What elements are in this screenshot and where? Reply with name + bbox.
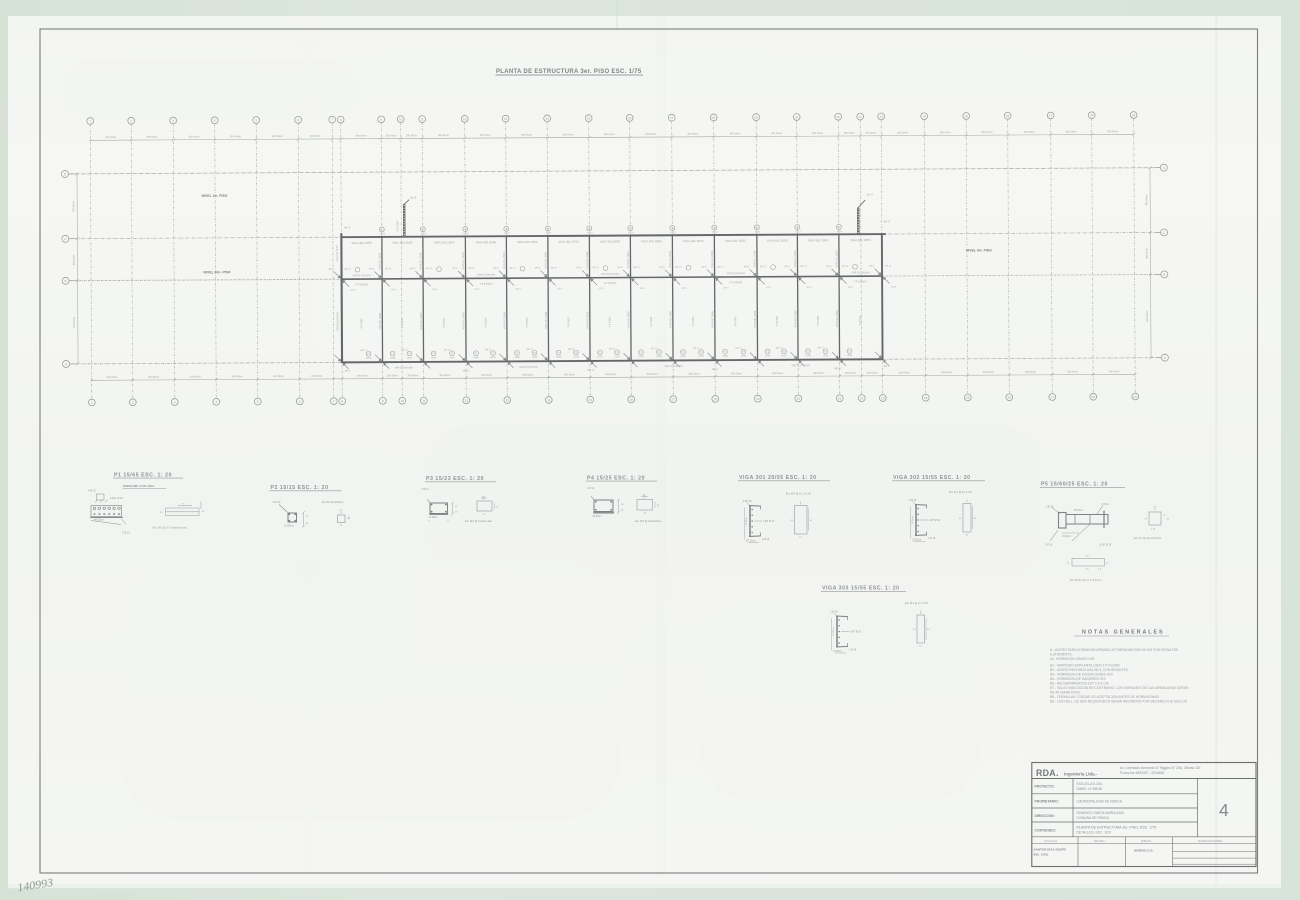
svg-text:MF 12: MF 12	[735, 348, 742, 350]
svg-text:VIGA 311 15/30: VIGA 311 15/30	[419, 252, 422, 269]
svg-text:P1: P1	[380, 229, 383, 231]
svg-text:300.00cm: 300.00cm	[522, 374, 533, 377]
svg-text:ESCUELA D-316 .: ESCUELA D-316 .	[1077, 782, 1104, 786]
svg-text:S ATIEMENTS: S ATIEMENTS	[1050, 652, 1072, 656]
svg-text:P1: P1	[391, 353, 394, 355]
svg-text:VIGA 311 15/30: VIGA 311 15/30	[669, 251, 672, 268]
svg-text:4 Est. Ø 10: 4 Est. Ø 10	[110, 496, 124, 500]
svg-text:VIGA 311 15/30: VIGA 311 15/30	[586, 251, 589, 268]
svg-text:VIGA 301 20/55 ESC. 1: 20: VIGA 301 20/55 ESC. 1: 20	[739, 475, 817, 481]
svg-text:VIGA 301 20/55: VIGA 301 20/55	[420, 312, 423, 330]
svg-text:300.00cm: 300.00cm	[687, 133, 698, 136]
svg-text:15/65: 15/65	[556, 357, 562, 359]
svg-text:15/25: 15/25	[614, 356, 620, 358]
svg-text:MF 12: MF 12	[469, 268, 476, 270]
svg-text:VIGA 311 15/30: VIGA 311 15/30	[544, 251, 547, 268]
svg-text:15: 15	[587, 116, 591, 120]
svg-text:4 Ø7 Ø 10: 4 Ø7 Ø 10	[763, 520, 775, 523]
svg-text:P2: P2	[421, 229, 424, 231]
svg-text:MF 12: MF 12	[885, 266, 892, 268]
svg-text:19: 19	[754, 115, 758, 119]
svg-text:P1: P1	[557, 352, 560, 354]
svg-text:300.00cm: 300.00cm	[605, 373, 616, 376]
svg-text:B8.- FORMULAS CITADAS VD ACEPT: B8.- FORMULAS CITADAS VD ACEPTACION ANTE…	[1050, 695, 1159, 699]
svg-text:5 E 8 Ø@25: 5 E 8 Ø@25	[730, 282, 743, 284]
svg-text:NIVEL 2do. PISO: NIVEL 2do. PISO	[204, 270, 231, 274]
svg-text:5 E 8 Ø25: 5 E 8 Ø25	[485, 317, 487, 328]
svg-text:P4: P4	[783, 351, 786, 353]
svg-text:300.00cm: 300.00cm	[480, 134, 491, 137]
svg-text:9: 9	[382, 399, 384, 403]
svg-text:300.00cm: 300.00cm	[689, 373, 700, 376]
svg-text:15/25: 15/25	[781, 355, 787, 357]
svg-text:3 Ø 18: 3 Ø 18	[1045, 543, 1053, 546]
svg-text:P4: P4	[824, 351, 827, 353]
svg-text:15/25: 15/25	[490, 357, 496, 359]
svg-text:15: 15	[589, 398, 593, 402]
svg-text:15/25: 15/25	[449, 357, 455, 359]
svg-text:GP 8: GP 8	[410, 196, 416, 200]
svg-text:150.00cm: 150.00cm	[386, 134, 397, 137]
svg-text:5 E 8 Ø25: 5 E 8 Ø25	[397, 220, 399, 231]
svg-text:CONTENIDO:: CONTENIDO:	[1035, 828, 1056, 832]
svg-text:15: 15	[348, 517, 351, 519]
svg-text:5 E 8 Ø25: 5 E 8 Ø25	[402, 318, 404, 329]
svg-text:GP 3: GP 3	[516, 289, 522, 291]
svg-text:P3: P3	[671, 228, 674, 230]
svg-text:Est. Ø 6 @ 10 + Estribos adic.: Est. Ø 6 @ 10 + Estribos adic.	[153, 525, 188, 529]
svg-text:P1: P1	[724, 351, 727, 353]
svg-text:P1: P1	[796, 227, 799, 229]
svg-text:MF 8: MF 8	[369, 268, 375, 270]
svg-text:15/23: 15/23	[837, 231, 843, 233]
svg-text:150.00cm: 150.00cm	[406, 134, 417, 137]
svg-text:300.00cm: 300.00cm	[438, 134, 449, 137]
svg-text:150.00cm: 150.00cm	[407, 374, 418, 377]
svg-text:MF 12: MF 12	[718, 266, 725, 268]
svg-text:15/23: 15/23	[504, 233, 510, 235]
svg-text:VER ELEVACION: VER ELEVACION	[353, 274, 372, 277]
svg-text:28: 28	[1090, 114, 1094, 118]
svg-text:MF 8: MF 8	[867, 193, 873, 197]
svg-text:20: 20	[795, 115, 799, 119]
svg-text:2 Ø 12: 2 Ø 12	[1102, 503, 1110, 506]
svg-text:15/25: 15/25	[656, 356, 662, 358]
svg-text:MF 3: MF 3	[884, 366, 890, 368]
svg-text:300.00cm: 300.00cm	[439, 374, 450, 377]
svg-text:300.00cm: 300.00cm	[357, 375, 368, 378]
svg-text:MF 12: MF 12	[776, 348, 783, 350]
svg-text:VER ELEVACION: VER ELEVACION	[477, 273, 496, 276]
svg-text:300.00cm: 300.00cm	[273, 375, 284, 378]
svg-text:300.00cm: 300.00cm	[272, 135, 283, 138]
svg-text:300.00cm: 300.00cm	[813, 372, 824, 375]
svg-text:VIGA 311 15/30: VIGA 311 15/30	[753, 250, 756, 267]
svg-text:PROPIETARIO:: PROPIETARIO:	[1035, 799, 1059, 803]
svg-text:MF 3: MF 3	[345, 371, 351, 373]
svg-text:60: 60	[1154, 506, 1157, 508]
svg-text:4 Ø7 Ø 10: 4 Ø7 Ø 10	[929, 519, 941, 522]
svg-text:MF 12: MF 12	[510, 268, 517, 270]
svg-text:VIGA 301 20/55: VIGA 301 20/55	[379, 312, 382, 330]
svg-text:VER ELEVACION: VER ELEVACION	[791, 364, 810, 367]
svg-text:MF 8: MF 8	[826, 266, 832, 268]
svg-text:DOMINGO SANTA MARIA 6440: DOMINGO SANTA MARIA 6440	[1077, 811, 1124, 815]
svg-text:P4: P4	[713, 227, 716, 229]
svg-text:25: 25	[966, 396, 970, 400]
svg-text:MF 12: MF 12	[593, 267, 600, 269]
svg-text:20: 20	[797, 397, 801, 401]
svg-text:5 E 8 Ø25: 5 E 8 Ø25	[361, 318, 363, 329]
svg-text:5 E 8 Ø25: 5 E 8 Ø25	[818, 315, 820, 326]
svg-text:P2 15/15 ESC. 1: 20: P2 15/15 ESC. 1: 20	[271, 485, 329, 491]
svg-text:Ø7.00cm: Ø7.00cm	[746, 539, 756, 542]
svg-text:300.00cm: 300.00cm	[1107, 130, 1118, 133]
svg-text:4 Ø 12: 4 Ø 12	[587, 487, 595, 490]
svg-text:B: B	[1163, 273, 1165, 277]
svg-text:GP 3: GP 3	[682, 288, 688, 290]
svg-text:21: 21	[838, 396, 842, 400]
svg-text:300.00cm: 300.00cm	[645, 133, 656, 136]
svg-text:60: 60	[1086, 556, 1089, 558]
svg-text:VIGA 301 20/55: VIGA 301 20/55	[462, 312, 465, 330]
svg-text:5 E 8 Ø25: 5 E 8 Ø25	[444, 317, 446, 328]
svg-text:MF 12: MF 12	[676, 267, 683, 269]
svg-text:GP 3: GP 3	[766, 287, 772, 289]
svg-text:P5 15/60/25 ESC. 1: 20: P5 15/60/25 ESC. 1: 20	[1041, 482, 1108, 488]
svg-text:11 Ø7 Ø 16: 11 Ø7 Ø 16	[1099, 543, 1112, 546]
svg-text:P4: P4	[616, 352, 619, 354]
svg-text:C: C	[1163, 231, 1166, 235]
svg-text:7: 7	[331, 118, 333, 122]
svg-text:MF 12: MF 12	[651, 348, 658, 350]
svg-text:15: 15	[340, 525, 343, 527]
svg-text:VIGA 301 20/55: VIGA 301 20/55	[545, 311, 548, 329]
svg-text:300.00cm: 300.00cm	[1025, 371, 1036, 374]
svg-text:15: 15	[1067, 563, 1070, 565]
svg-text:COMUNA DE RENCA: COMUNA DE RENCA	[1077, 816, 1110, 820]
svg-text:MF 12: MF 12	[817, 347, 824, 349]
svg-text:MF 8: MF 8	[453, 268, 459, 270]
svg-text:4 4: 4 4	[1098, 569, 1102, 571]
svg-text:5 E 8 Ø25: 5 E 8 Ø25	[527, 317, 529, 328]
svg-text:VIGA 302 15/55: VIGA 302 15/55	[850, 238, 871, 242]
svg-text:300.00cm: 300.00cm	[771, 132, 782, 135]
svg-text:22: 22	[858, 115, 862, 119]
svg-text:P4: P4	[492, 353, 495, 355]
svg-text:5 E 8 Ø@25: 5 E 8 Ø@25	[480, 284, 493, 286]
svg-text:15.50cm: 15.50cm	[284, 524, 294, 528]
svg-text:300.00cm: 300.00cm	[356, 135, 367, 138]
svg-text:MF 12: MF 12	[385, 268, 392, 270]
svg-text:9: 9	[380, 118, 382, 122]
svg-text:P3 15/23 ESC. 1: 20: P3 15/23 ESC. 1: 20	[426, 476, 484, 482]
svg-text:300.00cm: 300.00cm	[982, 131, 993, 134]
svg-text:15/23: 15/23	[546, 233, 552, 235]
svg-text:P1: P1	[516, 353, 519, 355]
svg-text:2: 2	[132, 401, 134, 405]
svg-text:GP 3: GP 3	[351, 290, 357, 292]
svg-text:14: 14	[547, 398, 551, 402]
svg-text:50: 50	[1086, 569, 1089, 571]
svg-text:MF 12: MF 12	[402, 350, 409, 352]
svg-text:P4 15/25 ESC. 1: 20: P4 15/25 ESC. 1: 20	[587, 475, 645, 481]
svg-text:P4: P4	[367, 353, 370, 355]
svg-text:5 E 8 Ø25: 5 E 8 Ø25	[651, 316, 653, 327]
svg-text:25: 25	[964, 114, 968, 118]
svg-text:PLANTA DE ESTRUCTURA 3er. PISO: PLANTA DE ESTRUCTURA 3er. PISO ESC. 1/75	[496, 69, 642, 75]
svg-text:VIGA 302 15/55: VIGA 302 15/55	[392, 241, 413, 245]
svg-text:MF 12: MF 12	[444, 349, 451, 351]
svg-text:22: 22	[860, 396, 864, 400]
svg-text:15/23: 15/23	[587, 232, 593, 234]
svg-text:60.00cm: 60.00cm	[1074, 509, 1083, 512]
svg-text:DE 40 DIAMETROS: DE 40 DIAMETROS	[1050, 690, 1080, 694]
svg-text:15/65: 15/65	[431, 357, 437, 359]
svg-text:5: 5	[255, 118, 257, 122]
svg-text:16: 16	[630, 398, 634, 402]
svg-text:15.00cm: 15.00cm	[1062, 535, 1071, 538]
svg-text:15/25: 15/25	[573, 357, 579, 359]
svg-text:GABR. LE BRUN: GABR. LE BRUN	[1077, 787, 1103, 791]
svg-text:300.00cm: 300.00cm	[730, 132, 741, 135]
svg-text:P1 15/65 ESC. 1: 20: P1 15/65 ESC. 1: 20	[114, 472, 172, 478]
svg-text:MF 12: MF 12	[485, 349, 492, 351]
svg-text:300.00cm: 300.00cm	[481, 374, 492, 377]
svg-text:4 Ø 18: 4 Ø 18	[762, 538, 770, 541]
svg-text:500.00cm: 500.00cm	[1146, 311, 1149, 322]
svg-text:15/65: 15/65	[597, 356, 603, 358]
svg-text:A.- ACERO PARA HORMIGON ARMADO: A.- ACERO PARA HORMIGON ARMADO A7 EMPALM…	[1050, 648, 1179, 652]
svg-text:MF 8: MF 8	[494, 268, 500, 270]
svg-text:MF 8: MF 8	[785, 266, 791, 268]
svg-text:Fonos-fax 6390307 - 2234466: Fonos-fax 6390307 - 2234466	[1120, 771, 1164, 775]
svg-text:300.00cm: 300.00cm	[647, 373, 658, 376]
svg-text:15/23: 15/23	[421, 233, 427, 235]
svg-text:MF 8: MF 8	[329, 269, 335, 271]
svg-text:15/65: 15/65	[473, 357, 479, 359]
svg-text:5 E 8 Ø@25: 5 E 8 Ø@25	[854, 281, 867, 283]
svg-text:2 Ø 18: 2 Ø 18	[928, 537, 936, 540]
svg-text:P1: P1	[640, 352, 643, 354]
svg-text:30: 30	[160, 512, 163, 514]
svg-text:15/23: 15/23	[755, 231, 761, 233]
svg-text:300.00cm: 300.00cm	[772, 372, 783, 375]
svg-text:15/25: 15/25	[407, 357, 413, 359]
svg-text:15.00cm: 15.00cm	[912, 538, 921, 541]
svg-text:15/23: 15/23	[628, 232, 634, 234]
svg-text:Est. Ø 6 @ 10+Estribos: Est. Ø 6 @ 10+Estribos	[635, 520, 662, 523]
svg-text:P1: P1	[475, 353, 478, 355]
svg-text:GP 3: GP 3	[724, 287, 730, 289]
svg-text:VIGA 302 15/55: VIGA 302 15/55	[434, 240, 455, 244]
svg-text:MF 8: MF 8	[660, 267, 666, 269]
svg-text:Est. Ø 4 @ 10, L=1.00: Est. Ø 4 @ 10, L=1.00	[786, 492, 811, 495]
svg-text:P4: P4	[505, 229, 508, 231]
svg-text:5 E 8 Ø25: 5 E 8 Ø25	[609, 316, 611, 327]
svg-text:7: 7	[333, 399, 335, 403]
svg-text:NIVEL 1er. PISO: NIVEL 1er. PISO	[202, 194, 228, 198]
svg-text:400.00cm: 400.00cm	[1145, 195, 1148, 206]
svg-text:GP 3: GP 3	[807, 287, 813, 289]
svg-text:VIGA 311 15/30: VIGA 311 15/30	[835, 250, 838, 267]
svg-text:25: 25	[1167, 519, 1170, 521]
svg-text:15/23: 15/23	[463, 233, 469, 235]
svg-text:300.00cm: 300.00cm	[148, 376, 159, 379]
svg-text:1: 1	[91, 401, 93, 405]
svg-text:GP 3: GP 3	[640, 288, 646, 290]
svg-text:17: 17	[672, 397, 676, 401]
svg-text:A: A	[65, 362, 68, 366]
svg-text:300.00cm: 300.00cm	[310, 135, 321, 138]
svg-text:2 Ø 18: 2 Ø 18	[849, 649, 857, 652]
svg-text:VIGA 311 15/30: VIGA 311 15/30	[711, 250, 714, 267]
svg-text:MF 8: MF 8	[535, 268, 541, 270]
svg-text:VIGA 302 15/55: VIGA 302 15/55	[351, 241, 372, 245]
svg-text:300.00cm: 300.00cm	[941, 371, 952, 374]
svg-text:15/25: 15/25	[532, 357, 538, 359]
svg-text:GP 3: GP 3	[891, 286, 897, 288]
svg-text:300.00cm: 300.00cm	[604, 133, 615, 136]
svg-text:MARCELO S.: MARCELO S.	[1134, 849, 1154, 853]
svg-text:55.00cm: 55.00cm	[833, 627, 835, 636]
svg-text:MF 8: MF 8	[577, 267, 583, 269]
svg-text:VIGA 311 15/30: VIGA 311 15/30	[794, 250, 797, 267]
svg-text:P1: P1	[432, 353, 435, 355]
svg-text:MF 12: MF 12	[834, 368, 841, 370]
svg-text:A1- HORMIGON GRADO H25: A1- HORMIGON GRADO H25	[1050, 657, 1095, 661]
svg-text:Est. Ø 4 @ 10, L=50: Est. Ø 4 @ 10, L=50	[949, 491, 972, 494]
svg-text:55.00cm: 55.00cm	[746, 517, 748, 526]
svg-text:P1: P1	[807, 351, 810, 353]
svg-text:12: 12	[465, 399, 469, 403]
svg-text:VIGA 301 20/55: VIGA 301 20/55	[725, 239, 746, 243]
svg-text:VIGA 311 15/30: VIGA 311 15/30	[462, 252, 465, 269]
svg-text:300.00cm: 300.00cm	[147, 136, 158, 139]
svg-text:150.00cm: 150.00cm	[387, 374, 398, 377]
svg-text:P5: P5	[755, 227, 758, 229]
svg-text:13: 13	[504, 117, 508, 121]
svg-text:VIGA 301 20/55: VIGA 301 20/55	[586, 311, 589, 329]
svg-text:300.00cm: 300.00cm	[983, 371, 994, 374]
svg-text:4 Ø 10: 4 Ø 10	[273, 500, 281, 504]
svg-text:15/65: 15/65	[638, 356, 644, 358]
svg-text:GP 3: GP 3	[432, 289, 438, 291]
svg-text:25: 25	[1145, 519, 1148, 521]
svg-text:5 E 8 Ø25: 5 E 8 Ø25	[777, 315, 779, 326]
svg-text:B2.- MORTERO EMPLANTILLADO 170: B2.- MORTERO EMPLANTILLADO 170 KG/M3	[1050, 663, 1120, 667]
svg-text:2: 2	[130, 119, 132, 123]
svg-text:15/65: 15/65	[765, 355, 771, 357]
svg-text:18: 18	[714, 397, 718, 401]
svg-text:A: A	[1164, 356, 1167, 360]
svg-text:MF 12: MF 12	[693, 348, 700, 350]
svg-text:140993: 140993	[16, 875, 54, 894]
svg-text:15.00cm: 15.00cm	[833, 650, 842, 653]
svg-text:VIGA 301 20/55: VIGA 301 20/55	[754, 310, 757, 328]
svg-text:300.00cm: 300.00cm	[899, 371, 910, 374]
svg-text:15/65: 15/65	[805, 355, 811, 357]
svg-text:VIGA 311 15/30: VIGA 311 15/30	[627, 251, 630, 268]
svg-text:150.00cm: 150.00cm	[865, 132, 876, 135]
svg-text:15/23: 15/23	[795, 231, 801, 233]
svg-text:8: 8	[340, 118, 342, 122]
svg-text:P2: P2	[837, 227, 840, 229]
svg-text:VIGA 302 15/72: VIGA 302 15/72	[558, 240, 579, 244]
svg-text:P2: P2	[629, 228, 632, 230]
svg-text:3 Ø 16: 3 Ø 16	[1046, 505, 1054, 508]
svg-text:4: 4	[214, 119, 216, 123]
svg-text:MF 8: MF 8	[702, 267, 708, 269]
svg-text:300.00cm: 300.00cm	[731, 372, 742, 375]
svg-text:D: D	[1163, 166, 1166, 170]
svg-text:NIVEL 3er. PISO: NIVEL 3er. PISO	[966, 248, 992, 252]
svg-text:18: 18	[712, 116, 716, 120]
svg-text:MF 12: MF 12	[463, 370, 470, 372]
svg-text:Est. Ø 4 @ 10, L=50: Est. Ø 4 @ 10, L=50	[905, 602, 928, 605]
svg-text:29: 29	[1132, 113, 1136, 117]
svg-text:300.00cm: 300.00cm	[521, 134, 532, 137]
svg-text:5 E 8 Ø25: 5 E 8 Ø25	[568, 317, 570, 328]
svg-text:MF 12: MF 12	[551, 267, 558, 269]
svg-text:300.00cm: 300.00cm	[897, 131, 908, 134]
svg-text:VIGA 301 20/55: VIGA 301 20/55	[794, 310, 797, 328]
svg-text:DETALLES, ESC. 1/20: DETALLES, ESC. 1/20	[1077, 831, 1112, 835]
svg-text:15/23: 15/23	[712, 232, 718, 234]
svg-text:400.00cm: 400.00cm	[72, 201, 75, 212]
svg-text:15: 15	[1106, 563, 1109, 565]
svg-text:I.MUNICIPALIDAD DE RENCA: I.MUNICIPALIDAD DE RENCA	[1077, 799, 1123, 803]
svg-text:5 E 8 Ø25: 5 E 8 Ø25	[860, 315, 862, 326]
svg-text:11: 11	[421, 117, 425, 121]
svg-text:P1: P1	[766, 351, 769, 353]
svg-text:12: 12	[463, 117, 467, 121]
svg-text:8: 8	[341, 399, 343, 403]
svg-text:VIGA 311 15/30: VIGA 311 15/30	[378, 252, 381, 269]
svg-text:300.00cm: 300.00cm	[73, 254, 76, 265]
svg-text:21: 21	[836, 115, 840, 119]
svg-text:P3: P3	[464, 229, 467, 231]
svg-text:B7.- SALVO INDICACION EN CONTR: B7.- SALVO INDICACION EN CONTRARIO, LOS …	[1050, 686, 1189, 690]
svg-text:MF 12: MF 12	[842, 266, 849, 268]
svg-text:P1: P1	[599, 352, 602, 354]
svg-text:VER ELEVACION: VER ELEVACION	[519, 366, 538, 369]
svg-text:P4: P4	[700, 351, 703, 353]
svg-text:GP 3: GP 3	[475, 289, 481, 291]
svg-text:Est. Ø 6 @ 10+Est. adic.: Est. Ø 6 @ 10+Est. adic.	[465, 520, 493, 523]
svg-text:15/25: 15/25	[741, 356, 747, 358]
svg-text:500.00cm: 500.00cm	[73, 317, 76, 328]
svg-text:MF 8: MF 8	[344, 226, 350, 230]
svg-text:VIGA 311 15/30: VIGA 311 15/30	[503, 252, 506, 269]
svg-text:P4: P4	[742, 351, 745, 353]
svg-text:45.00cm: 45.00cm	[94, 517, 104, 521]
svg-text:P1: P1	[682, 352, 685, 354]
svg-text:MF 12: MF 12	[587, 370, 594, 372]
svg-text:MF 8: MF 8	[410, 268, 416, 270]
svg-text:VIGA 301 20/55: VIGA 301 20/55	[711, 310, 714, 328]
svg-text:300.00cm: 300.00cm	[107, 376, 118, 379]
svg-text:27: 27	[1049, 114, 1053, 118]
svg-text:VIGA 301 20/55: VIGA 301 20/55	[600, 239, 621, 243]
svg-text:300.00cm: 300.00cm	[1146, 248, 1149, 259]
svg-text:MF 12: MF 12	[361, 350, 368, 352]
svg-text:5 E 8 Ø25: 5 E 8 Ø25	[693, 316, 695, 327]
svg-text:15/25: 15/25	[698, 356, 704, 358]
svg-text:MF 12: MF 12	[760, 266, 767, 268]
svg-text:2 Ø 18: 2 Ø 18	[909, 499, 917, 502]
svg-text:23: 23	[881, 396, 885, 400]
